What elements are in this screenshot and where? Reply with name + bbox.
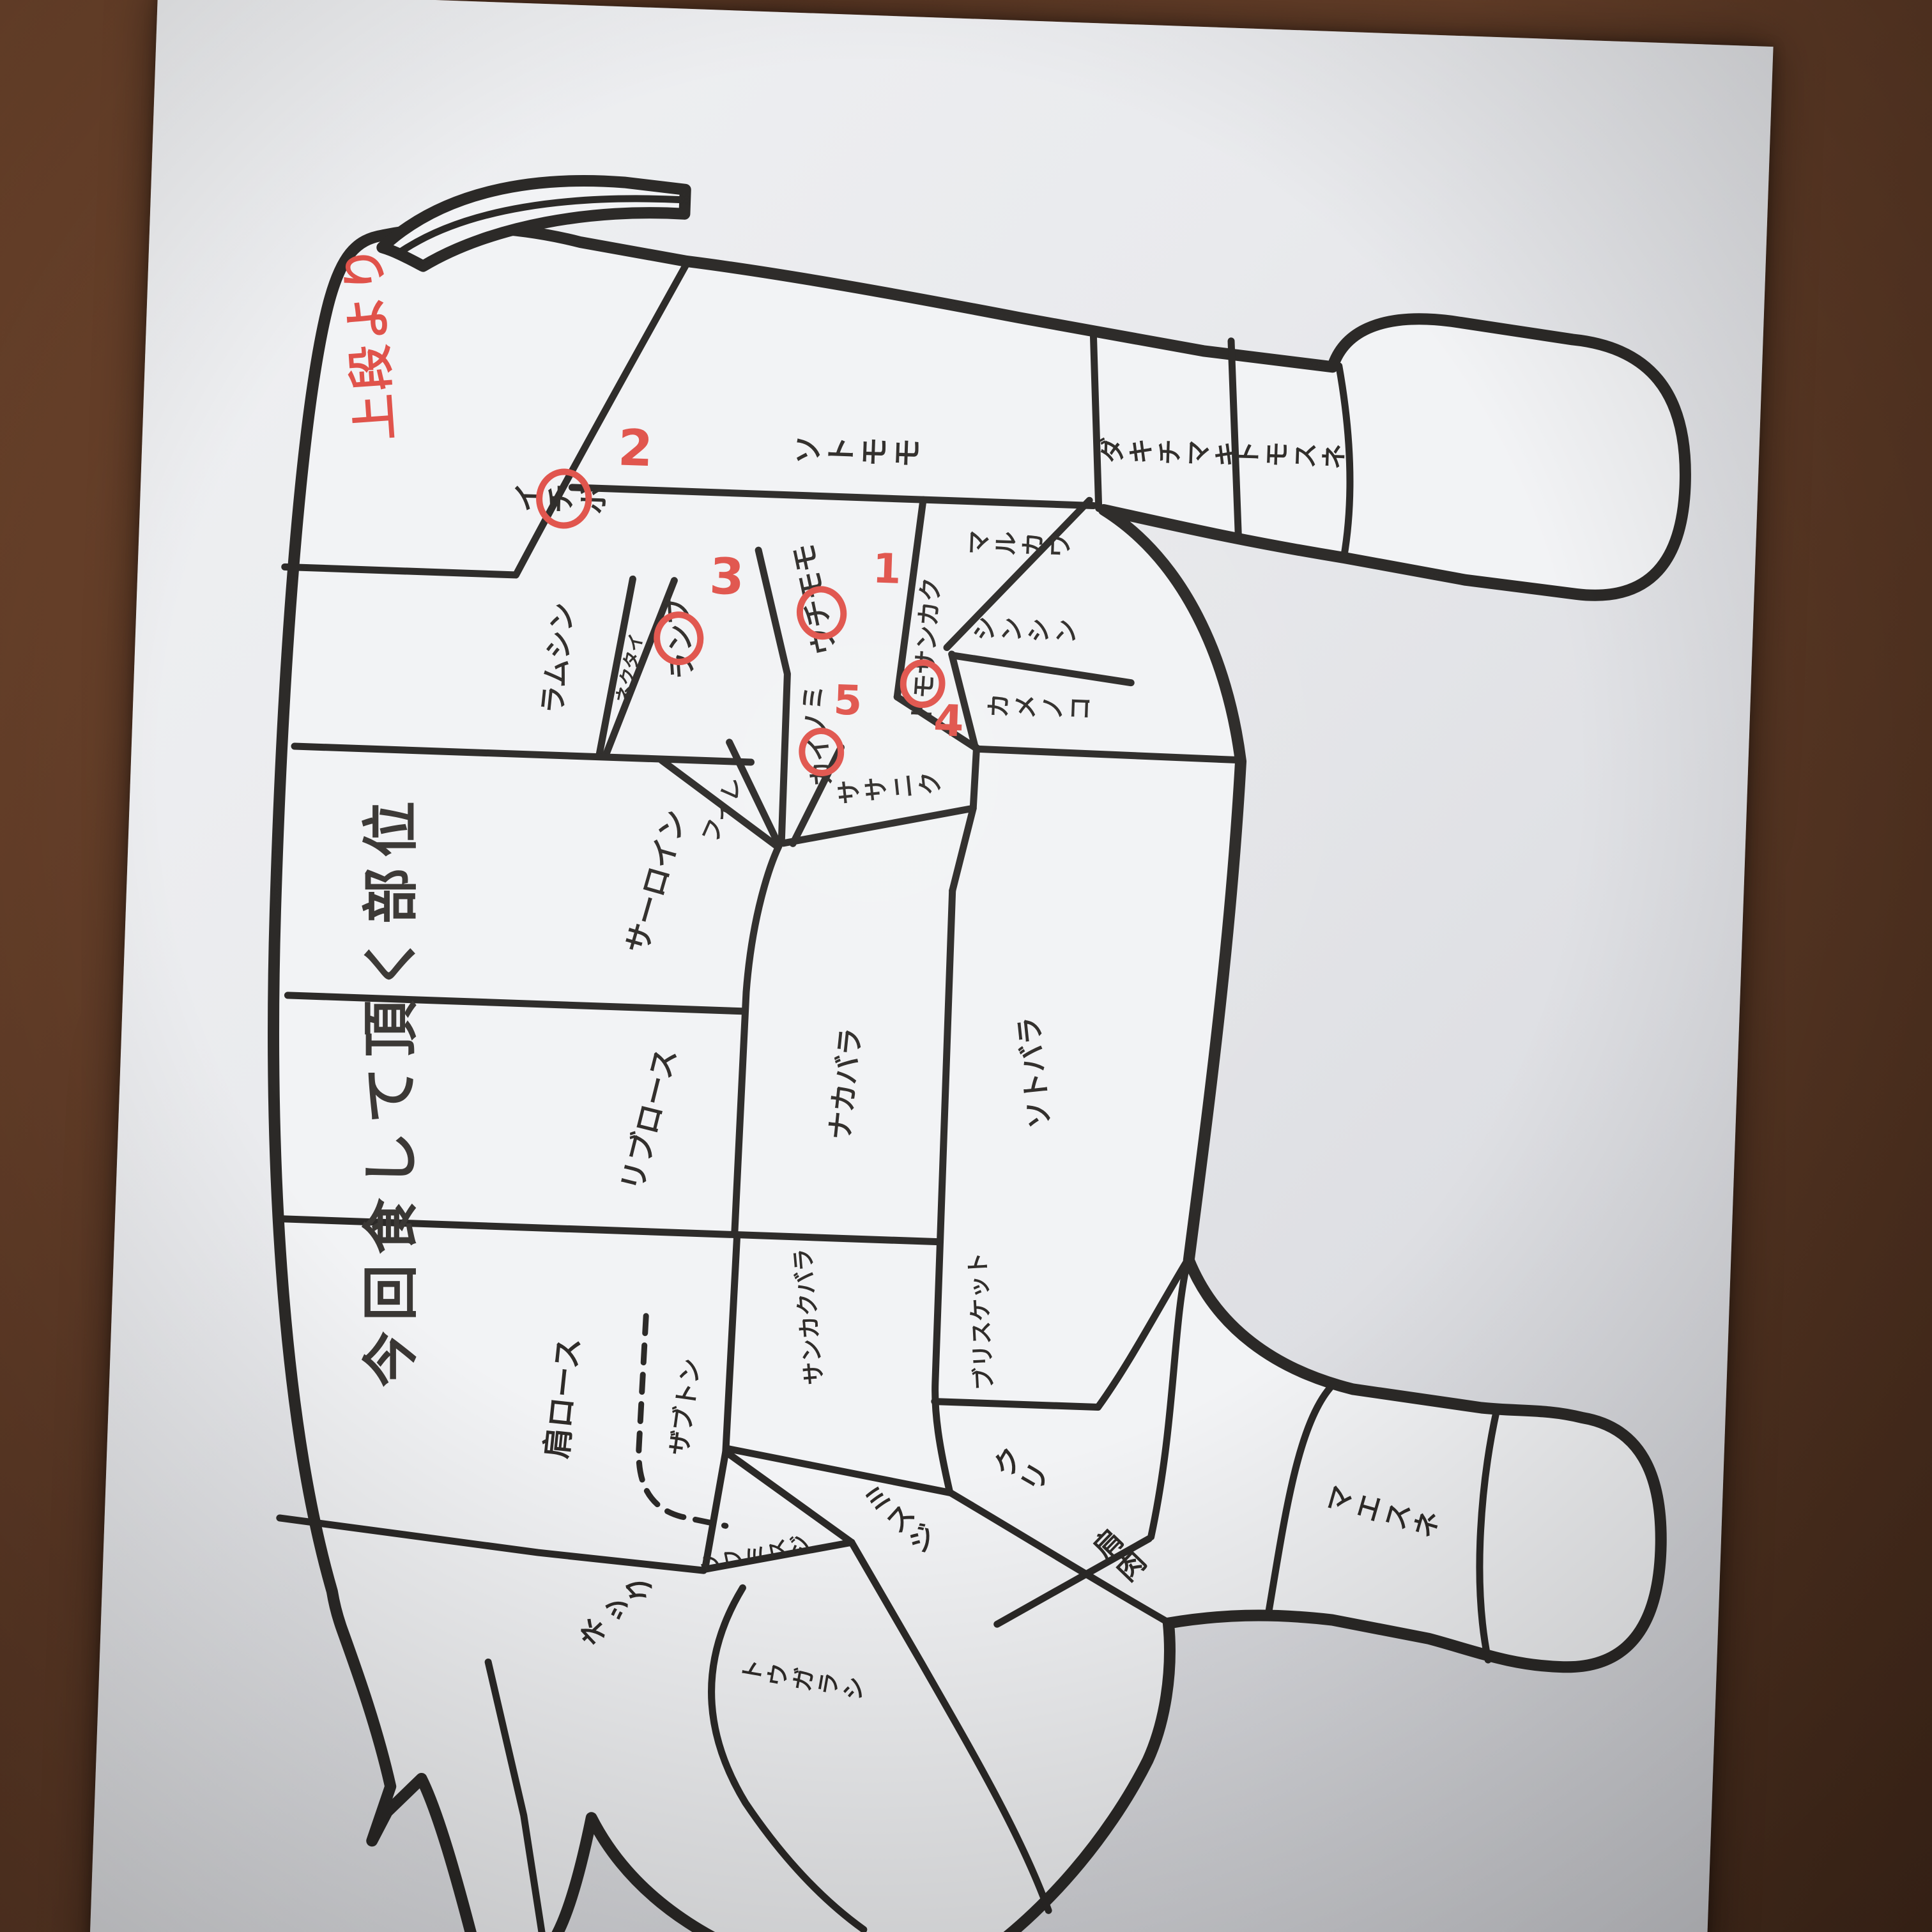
label-tomosune: トモスネ	[1234, 440, 1350, 470]
svg-text:イチボ: イチボ	[510, 482, 612, 515]
label-sotomomo: ソトモモ	[791, 434, 925, 468]
svg-text:ランプ: ランプ	[661, 595, 700, 681]
red-number-5: 5	[832, 677, 862, 725]
photo-scene: イチボラムシンネクタイランプウチモモソトモモダキチマキトモスネマルカワシンシンカ…	[0, 0, 1932, 1932]
beef-cuts-diagram: イチボラムシンネクタイランプウチモモソトモモダキチマキトモスネマルカワシンシンカ…	[107, 52, 1752, 1932]
red-number-3: 3	[709, 548, 745, 607]
label-shinshin: シンシン	[970, 616, 1081, 644]
svg-text:シンシン: シンシン	[970, 616, 1081, 644]
beef-chart-paper: イチボラムシンネクタイランプウチモモソトモモダキチマキトモスネマルカワシンシンカ…	[86, 0, 1773, 1932]
label-rump: ランプ	[661, 595, 700, 681]
label-kamenoko: カメノコ	[985, 693, 1095, 721]
diagram-title: 今回食して頂く部位	[358, 791, 424, 1387]
svg-text:ソトモモ: ソトモモ	[791, 434, 925, 468]
beef-chart-card: イチボラムシンネクタイランプウチモモソトモモダキチマキトモスネマルカワシンシンカ…	[107, 52, 1752, 1932]
svg-text:トモスネ: トモスネ	[1234, 440, 1350, 470]
label-ichibo: イチボ	[510, 482, 612, 515]
svg-text:ダキチマキ: ダキチマキ	[1098, 437, 1243, 468]
red-number-2: 2	[617, 419, 654, 478]
red-number-1: 1	[872, 545, 902, 594]
label-marukawa: マルカワ	[965, 530, 1075, 558]
svg-text:マルカワ: マルカワ	[965, 530, 1075, 558]
red-number-4: 4	[933, 696, 965, 747]
cow-body-outline	[238, 222, 1705, 1932]
svg-text:カメノコ: カメノコ	[985, 693, 1095, 721]
label-dakichimaki: ダキチマキ	[1098, 437, 1243, 468]
